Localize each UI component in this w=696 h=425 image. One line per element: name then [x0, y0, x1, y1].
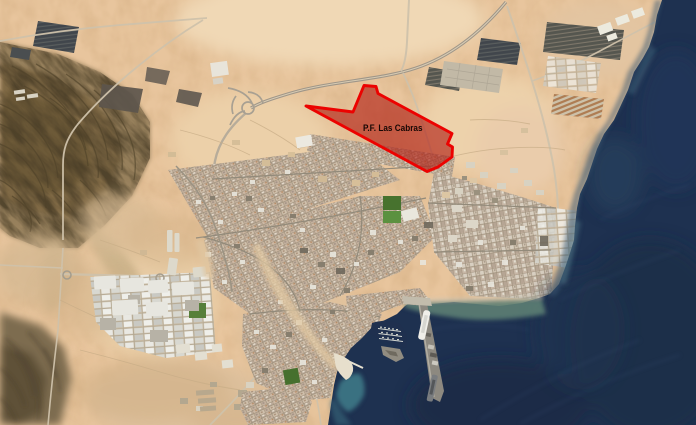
svg-text:P.F. Las Cabras: P.F. Las Cabras: [363, 123, 423, 134]
